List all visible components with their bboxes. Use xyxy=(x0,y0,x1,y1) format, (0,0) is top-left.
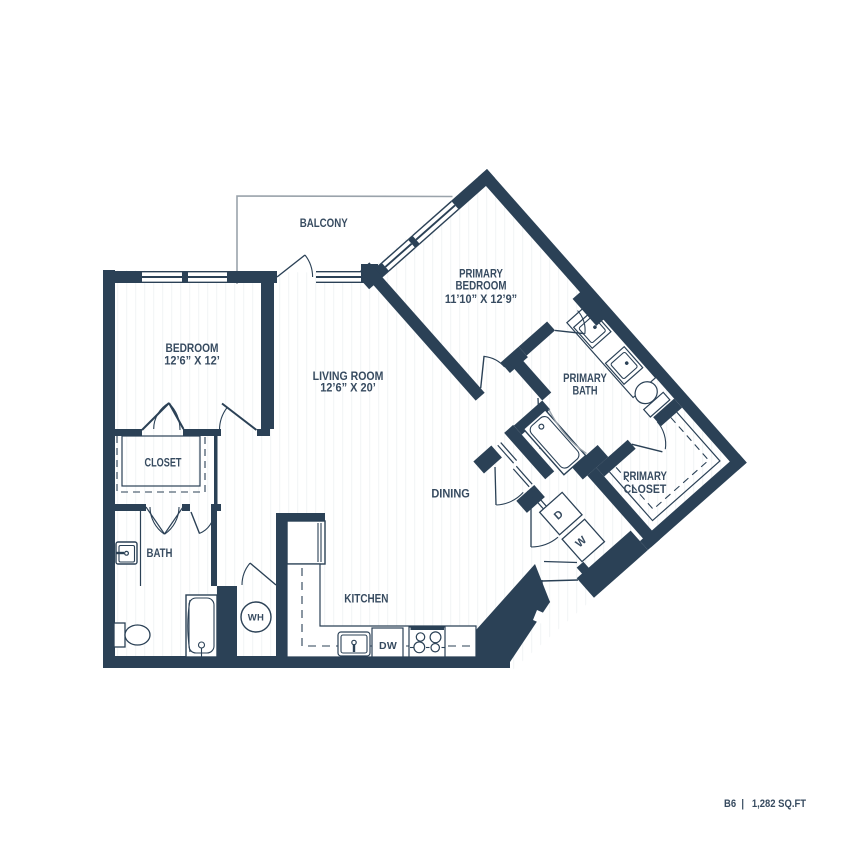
svg-text:BATH: BATH xyxy=(573,386,598,398)
svg-text:BALCONY: BALCONY xyxy=(300,218,348,230)
svg-text:CLOSET: CLOSET xyxy=(145,457,182,469)
svg-text:12’6” X 20’: 12’6” X 20’ xyxy=(320,382,376,394)
svg-text:CLOSET: CLOSET xyxy=(624,484,667,496)
svg-text:PRIMARY: PRIMARY xyxy=(459,269,503,281)
svg-text:BATH: BATH xyxy=(147,548,173,560)
svg-text:12’6” X 12’: 12’6” X 12’ xyxy=(164,356,220,368)
svg-text:LIVING ROOM: LIVING ROOM xyxy=(313,371,384,383)
svg-text:BEDROOM: BEDROOM xyxy=(456,280,507,292)
svg-text:11’10” X 12’9”: 11’10” X 12’9” xyxy=(445,294,517,306)
svg-text:KITCHEN: KITCHEN xyxy=(344,594,388,606)
svg-text:DINING: DINING xyxy=(431,489,470,501)
svg-text:PRIMARY: PRIMARY xyxy=(623,471,667,483)
svg-text:B6 | 1,282 SQ.FT: B6 | 1,282 SQ.FT xyxy=(724,798,806,810)
svg-text:DW: DW xyxy=(379,640,397,652)
svg-text:PRIMARY: PRIMARY xyxy=(563,373,607,385)
svg-text:BEDROOM: BEDROOM xyxy=(166,343,219,355)
svg-text:WH: WH xyxy=(248,613,264,624)
